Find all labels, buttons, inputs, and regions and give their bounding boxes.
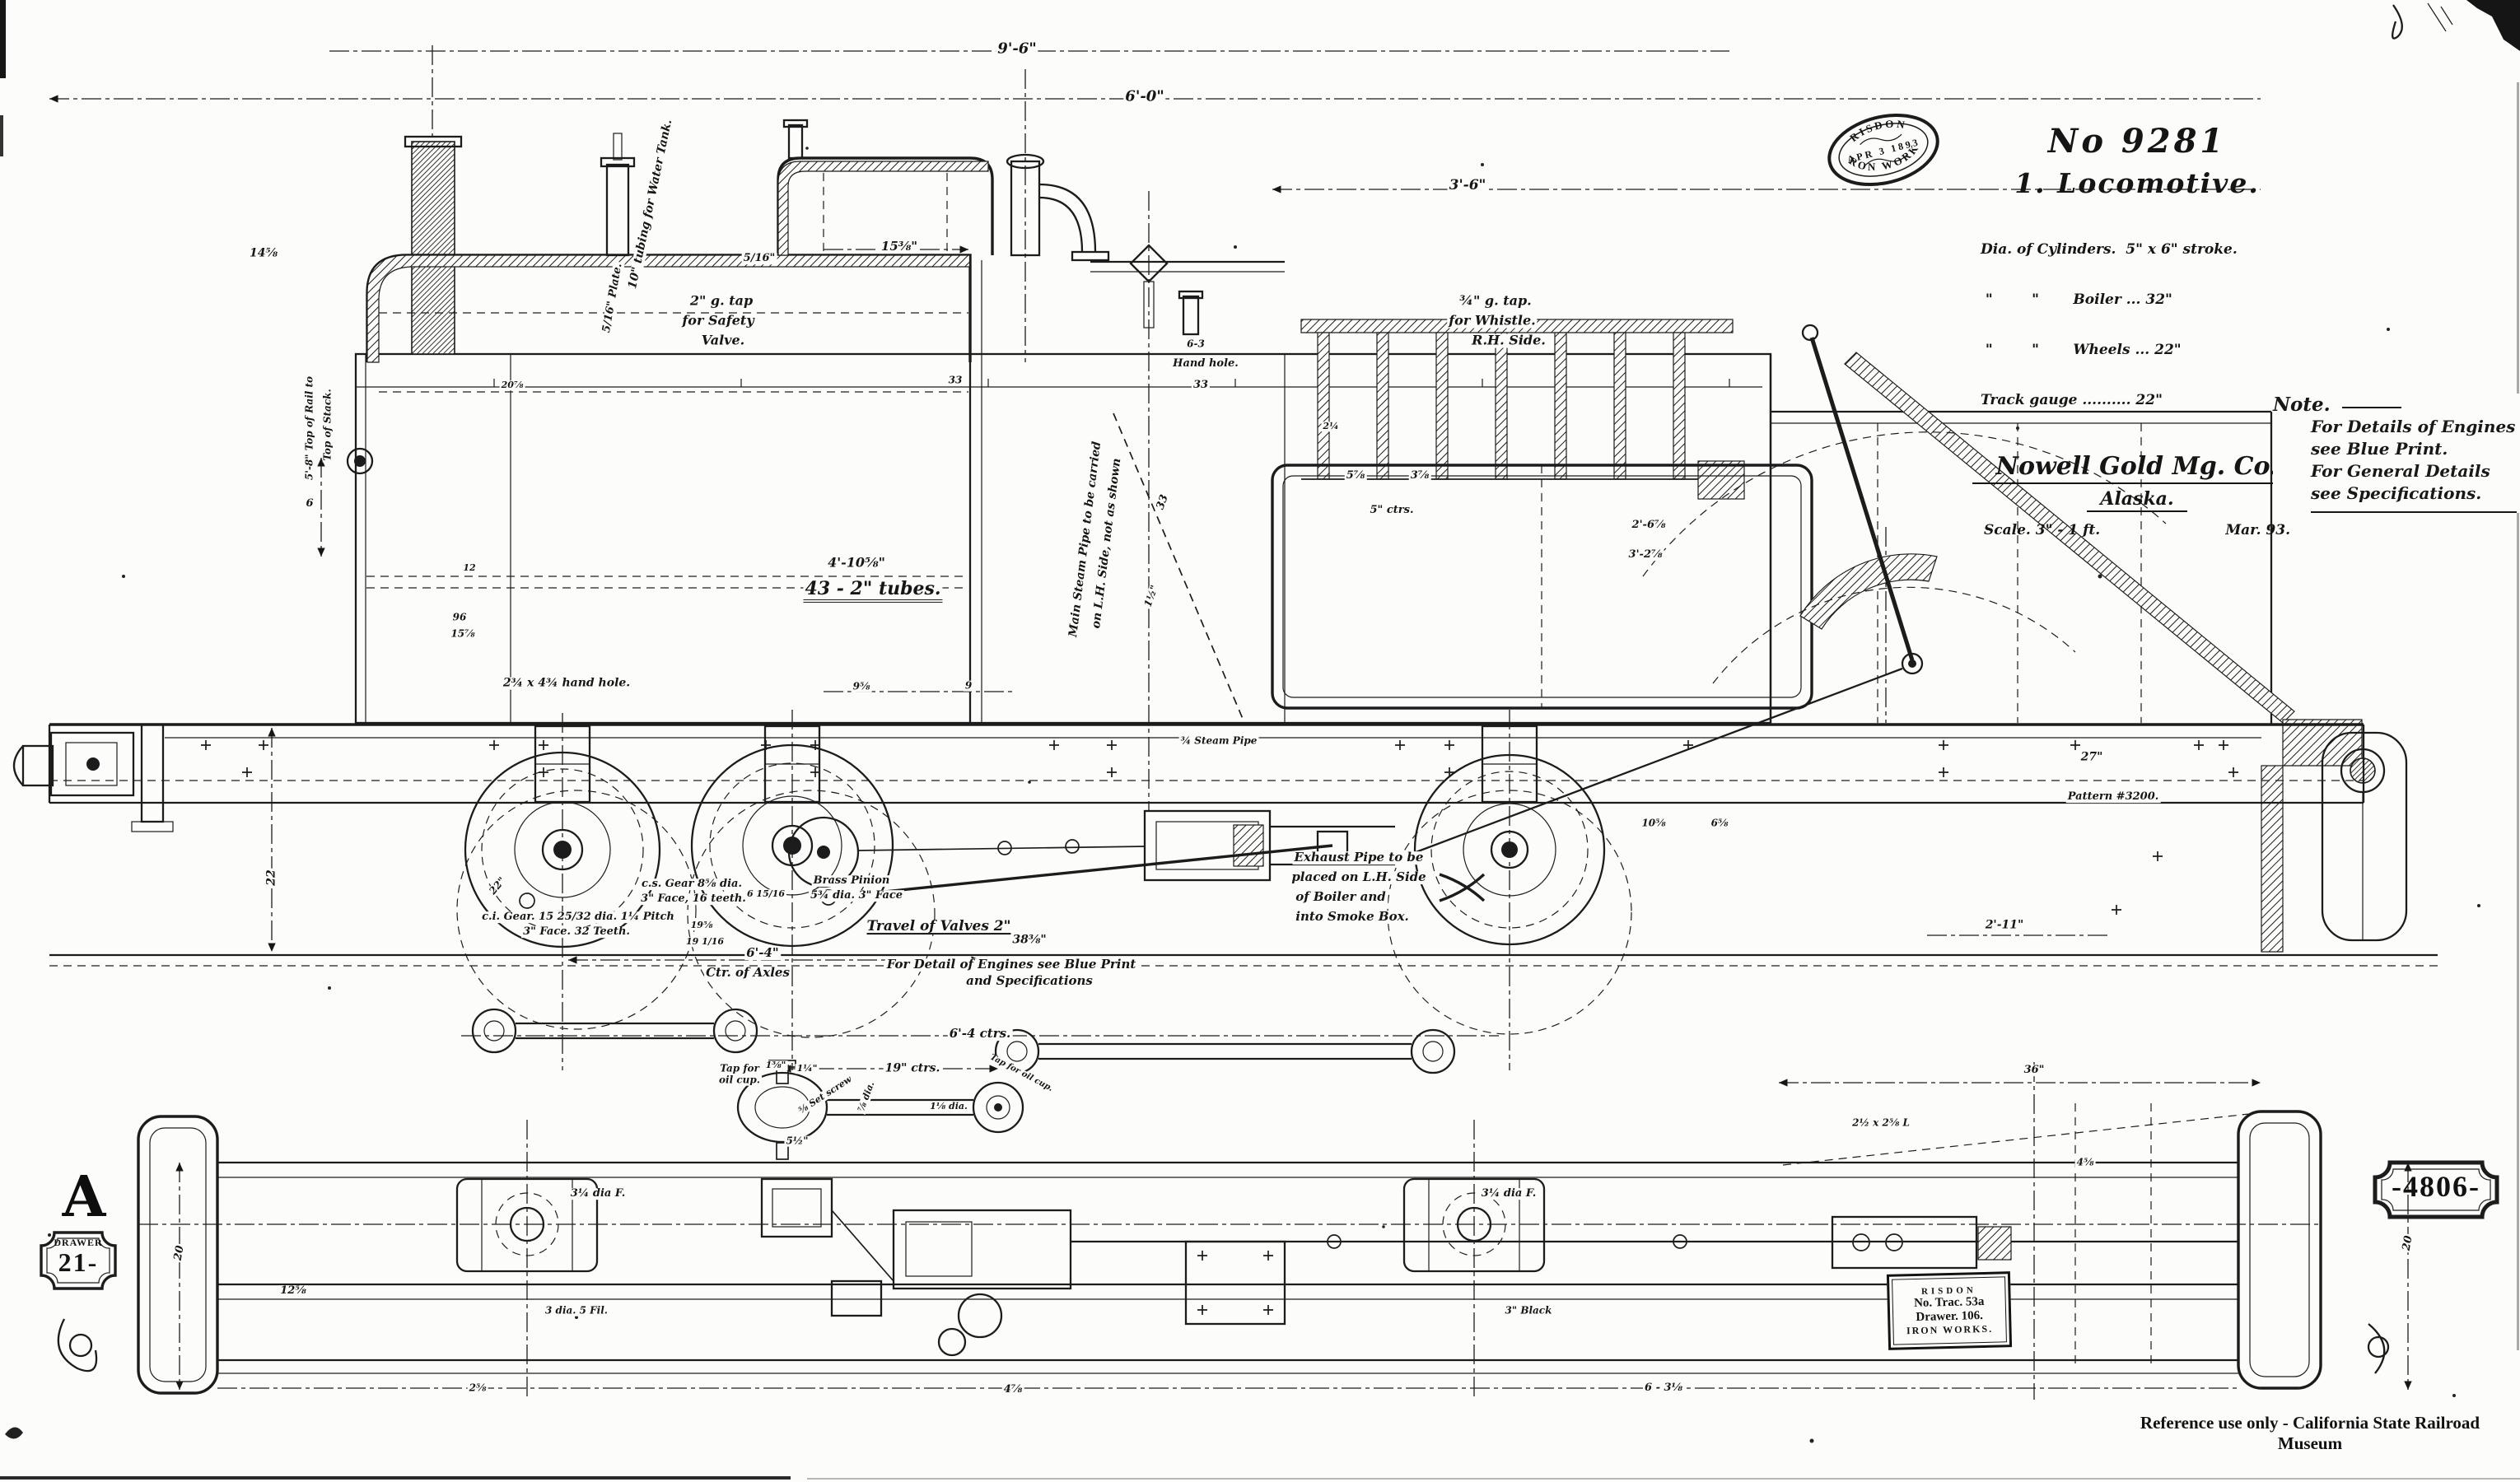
dimension-label: c.i. Gear. 15 25/32 dia. 1¼ Pitch bbox=[480, 911, 676, 923]
dimension-label: of Boiler and bbox=[1294, 891, 1388, 904]
dimension-label: For Detail of Engines see Blue Print bbox=[885, 958, 1138, 972]
dimension-label: 3" Face, 16 teeth. bbox=[639, 893, 748, 905]
dimension-label: Brass Pinion bbox=[812, 875, 892, 887]
dimension-label: into Smoke Box. bbox=[1294, 911, 1410, 924]
dimension-label: 27" bbox=[2079, 752, 2105, 764]
dimension-label: 10⅝ bbox=[1640, 818, 1667, 829]
risdon-date-stamp: RISDON APR 3 1893 IRON WORKS bbox=[1822, 105, 1944, 195]
works-label-works: IRON WORKS. bbox=[1892, 1322, 2007, 1337]
dimension-label: R.H. Side. bbox=[1470, 334, 1547, 348]
spec-line: " " Wheels ... 22" bbox=[1981, 342, 2302, 358]
dimension-label: 19⅝ bbox=[689, 920, 715, 930]
spec-line: Dia. of Cylinders. 5" x 6" stroke. bbox=[1981, 241, 2302, 258]
dimension-label: 3" Black bbox=[1504, 1306, 1554, 1317]
note-line: For General Details bbox=[2311, 460, 2520, 482]
dimension-label: 36" bbox=[2023, 1065, 2046, 1076]
dimension-label: for Whistle. bbox=[1447, 315, 1537, 329]
dimension-label: 1⅜" bbox=[764, 1060, 788, 1070]
rail-line bbox=[49, 955, 2438, 966]
dimension-label: 33 bbox=[1192, 380, 1210, 391]
pencil-scribble bbox=[2392, 5, 2402, 39]
dimension-label: 2⅝ bbox=[468, 1383, 488, 1394]
dimension-label: oil cup. bbox=[717, 1075, 762, 1086]
dimension-label: 2¼ bbox=[1321, 422, 1340, 431]
dimension-label: 5¾ dia. 3" Face bbox=[809, 890, 904, 902]
dimension-label: Tap for bbox=[718, 1064, 761, 1074]
blueprint-sheet: RISDON APR 3 1893 IRON WORKS 9'-6"6'-0"3… bbox=[0, 0, 2520, 1482]
scale-date-row: Scale. 3" - 1 ft. Mar. 93. bbox=[1972, 522, 2302, 538]
dimension-label: 6 - 3⅛ bbox=[1643, 1382, 1684, 1394]
drawing-title: 1. Locomotive. bbox=[1972, 167, 2302, 199]
title-block: No 9281 1. Locomotive. Dia. of Cylinders… bbox=[1972, 122, 2302, 538]
plate-number-badge: -4806- bbox=[2375, 1169, 2497, 1204]
note-rule bbox=[2342, 407, 2401, 408]
works-label: RISDON No. Trac. 53a Drawer. 106. IRON W… bbox=[1887, 1271, 2012, 1350]
drawer-badge-number: 21- bbox=[41, 1249, 115, 1275]
dimension-label: 14⅝ bbox=[248, 248, 279, 260]
dimension-label: 4⅞ bbox=[1002, 1384, 1024, 1396]
reference-footer: Reference use only - California State Ra… bbox=[2116, 1413, 2504, 1454]
dimension-label: 12 bbox=[461, 563, 477, 573]
dimension-label: 33 bbox=[947, 375, 964, 386]
note-line: see Blue Print. bbox=[2311, 438, 2520, 460]
spec-line: " " Boiler ... 32" bbox=[1981, 291, 2302, 308]
dimension-label: 6-3 bbox=[1185, 339, 1206, 350]
dimension-label: 19" ctrs. bbox=[884, 1063, 942, 1075]
dimension-label: Hand hole. bbox=[1171, 358, 1240, 370]
dimension-label: 2'-11" bbox=[1984, 920, 2026, 932]
dimension-label: 6 15/16 bbox=[745, 889, 786, 899]
reverse-quadrant bbox=[1800, 554, 1937, 629]
dimension-label: 5" ctrs. bbox=[1369, 505, 1416, 516]
smokestack bbox=[412, 142, 455, 354]
dimension-label: Exhaust Pipe to be bbox=[1293, 851, 1426, 864]
location-wrap: Alaska. bbox=[1972, 488, 2302, 512]
manhole-pipe bbox=[607, 165, 628, 255]
gear-circle bbox=[457, 790, 696, 1029]
note-underline bbox=[2311, 511, 2517, 513]
date-note: Mar. 93. bbox=[2225, 522, 2290, 538]
dimension-label: 5'-8" Top of Rail to bbox=[305, 375, 315, 482]
dimension-label: 1¼" bbox=[796, 1064, 819, 1074]
dimension-label: and Specifications bbox=[964, 975, 1094, 988]
dimension-label: 9⅝ bbox=[852, 682, 872, 692]
dimension-label: 5⅞ bbox=[1345, 470, 1367, 482]
note-line: For Details of Engines bbox=[2311, 416, 2520, 438]
dimension-label: ¾ Steam Pipe bbox=[1179, 736, 1259, 747]
dimension-label: Pattern #3200. bbox=[2066, 791, 2161, 803]
dimension-label: 4⅝ bbox=[2075, 1158, 2096, 1168]
spec-line: Track gauge .......... 22" bbox=[1981, 392, 2302, 408]
dimension-label: 43 - 2" tubes. bbox=[803, 580, 942, 603]
dimension-label: for Safety bbox=[680, 315, 755, 329]
dimension-label: 9'-6" bbox=[996, 42, 1038, 58]
main-frame bbox=[14, 725, 2364, 915]
note-block: Note. For Details of Engines see Blue Pr… bbox=[2273, 394, 2520, 513]
scale-note: Scale. 3" - 1 ft. bbox=[1984, 522, 2100, 538]
dimension-label: 4'-10⅝" bbox=[826, 557, 887, 571]
dimension-label: 5½" bbox=[784, 1136, 810, 1147]
note-heading: Note. bbox=[2273, 394, 2331, 416]
dimension-label: 2½ x 2⅝ L bbox=[1850, 1118, 1911, 1129]
spec-list: Dia. of Cylinders. 5" x 6" stroke. " " B… bbox=[1981, 207, 2302, 442]
whistle bbox=[1183, 296, 1198, 334]
dimension-label: 3¼ dia F. bbox=[1480, 1188, 1538, 1200]
dimension-label: 20⅞ bbox=[500, 380, 525, 390]
dimension-label: placed on L.H. Side bbox=[1290, 871, 1427, 884]
dimension-label: 12⅝ bbox=[278, 1285, 308, 1297]
dimension-label: Travel of Valves 2" bbox=[866, 920, 1013, 934]
dimension-label: 15⅜" bbox=[880, 240, 919, 254]
dimension-label: 5/16" bbox=[742, 253, 777, 264]
dimension-label: 6'-4 ctrs. bbox=[948, 1028, 1013, 1041]
gear-circle bbox=[688, 790, 935, 1037]
dimension-label: 3" Face. 32 Teeth. bbox=[521, 926, 632, 938]
dimension-label: 3⅞ bbox=[1409, 470, 1431, 482]
dimension-label: 9 bbox=[964, 681, 973, 692]
dimension-label: 3'-6" bbox=[1448, 179, 1488, 193]
dimension-label: 3'-2⅞ bbox=[1627, 549, 1664, 561]
dimension-label: 6 bbox=[304, 498, 315, 510]
dimension-label: 22 bbox=[266, 868, 278, 887]
dimension-label: 6'-0" bbox=[1123, 90, 1165, 105]
dimension-label: 96 bbox=[451, 613, 469, 623]
dimension-label: ¾" g. tap. bbox=[1458, 295, 1533, 309]
dimension-label: Ctr. of Axles bbox=[704, 967, 791, 980]
dimension-label: 6'-4" bbox=[744, 947, 781, 960]
lower-frame-view bbox=[58, 1103, 2388, 1393]
dimension-label: 6⅝ bbox=[1710, 818, 1730, 829]
dimension-label: Top of Stack. bbox=[323, 387, 334, 462]
note-line: see Specifications. bbox=[2311, 482, 2520, 505]
dimension-label: 2" g. tap bbox=[688, 295, 754, 309]
dimension-label: c.s. Gear 8⅝ dia. bbox=[640, 878, 744, 890]
dimension-label: 1⅛ dia. bbox=[928, 1102, 969, 1111]
dimension-label: 3¼ dia F. bbox=[569, 1188, 628, 1200]
dimension-label: 38⅜" bbox=[1010, 934, 1048, 947]
steam-pipe-route bbox=[1113, 413, 1245, 725]
company-name: Nowell Gold Mg. Co. bbox=[1972, 452, 2302, 484]
dimension-label: 2'-6⅞ bbox=[1631, 520, 1668, 531]
dimension-label: 15⅞ bbox=[449, 629, 476, 640]
valve-motion bbox=[789, 413, 1484, 901]
drawer-badge: DRAWER 21- bbox=[41, 1237, 115, 1275]
dimension-label: 19 1/16 bbox=[684, 937, 726, 947]
dimension-label: 3 dia. 5 Fil. bbox=[544, 1306, 609, 1317]
rear-end-beam bbox=[2238, 1111, 2321, 1388]
drawer-letter-stamp: A bbox=[58, 1169, 110, 1225]
dimension-label: 2¾ x 4¾ hand hole. bbox=[502, 678, 632, 690]
firebox-and-side-tank bbox=[1272, 319, 1812, 708]
location: Alaska. bbox=[2087, 488, 2186, 512]
drawing-number: No 9281 bbox=[1972, 122, 2302, 161]
dimension-label: Valve. bbox=[700, 334, 746, 348]
